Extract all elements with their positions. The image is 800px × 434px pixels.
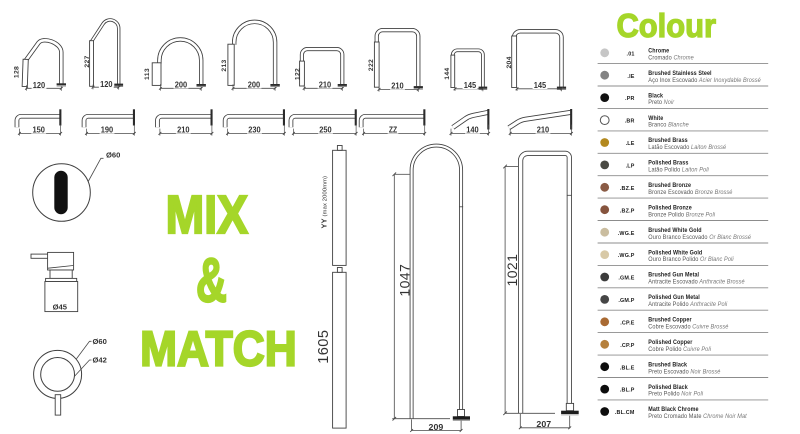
- svg-text:Matt Black Chrome: Matt Black Chrome: [648, 407, 699, 414]
- svg-text:Ø60: Ø60: [93, 337, 107, 346]
- svg-text:Cobre Escovado Cuivre Brossé: Cobre Escovado Cuivre Brossé: [648, 324, 729, 330]
- svg-text:1021: 1021: [504, 254, 520, 287]
- svg-text:MATCH: MATCH: [140, 320, 297, 376]
- svg-text:.BL.CM: .BL.CM: [615, 410, 635, 416]
- svg-text:Brushed Black: Brushed Black: [648, 362, 687, 369]
- svg-text:.GM.E: .GM.E: [618, 276, 634, 282]
- svg-text:227: 227: [84, 55, 91, 67]
- svg-text:209: 209: [429, 422, 444, 432]
- svg-text:Polished Copper: Polished Copper: [648, 340, 693, 347]
- svg-text:210: 210: [319, 80, 332, 89]
- svg-text:Polished Gun Metal: Polished Gun Metal: [648, 295, 700, 302]
- svg-text:210: 210: [537, 126, 550, 135]
- svg-text:210: 210: [391, 82, 404, 91]
- svg-text:145: 145: [464, 81, 477, 90]
- svg-text:.CP.P: .CP.P: [620, 343, 635, 349]
- svg-text:128: 128: [14, 66, 21, 78]
- svg-text:190: 190: [101, 126, 114, 135]
- svg-text:.PR: .PR: [625, 96, 635, 102]
- svg-text:1605: 1605: [316, 330, 332, 364]
- svg-text:.BL.E: .BL.E: [620, 365, 635, 371]
- svg-text:.WG.P: .WG.P: [618, 253, 635, 259]
- svg-text:.BR: .BR: [625, 119, 635, 125]
- svg-text:Preto Polido Noir Poli: Preto Polido Noir Poli: [648, 391, 703, 397]
- svg-text:Preto Escovado Noir Brossé: Preto Escovado Noir Brossé: [648, 369, 721, 375]
- svg-text:Ouro Branco Polido Or Blanc Po: Ouro Branco Polido Or Blanc Poli: [648, 257, 734, 263]
- svg-text:Antracite Escovado Anthracite: Antracite Escovado Anthracite Brossé: [648, 279, 745, 285]
- svg-text:.IE: .IE: [627, 74, 634, 80]
- svg-text:Ouro Branco Escovado Or Blanc: Ouro Branco Escovado Or Blanc Brossé: [648, 235, 751, 241]
- svg-text:Preto Cromado Mate Chrome Noir: Preto Cromado Mate Chrome Noir Mat: [648, 414, 747, 420]
- svg-text:.BL.P: .BL.P: [620, 388, 635, 394]
- svg-text:Black: Black: [648, 93, 663, 100]
- svg-text:.BZ.P: .BZ.P: [620, 208, 635, 214]
- svg-text:Cobre Polido Cuivre Poli: Cobre Polido Cuivre Poli: [648, 347, 711, 353]
- svg-text:Colour: Colour: [617, 7, 717, 44]
- svg-text:Polished Bronze: Polished Bronze: [648, 205, 692, 212]
- svg-text:210: 210: [177, 126, 190, 135]
- svg-text:.01: .01: [627, 51, 635, 57]
- svg-text:.LP: .LP: [626, 164, 635, 170]
- svg-text:Preto Noir: Preto Noir: [648, 100, 675, 106]
- svg-text:Cromado Chrome: Cromado Chrome: [648, 55, 694, 61]
- svg-text:MIX: MIX: [166, 184, 249, 245]
- svg-text:Ø45: Ø45: [53, 303, 68, 312]
- svg-text:200: 200: [248, 80, 261, 89]
- svg-text:.LE: .LE: [626, 141, 635, 147]
- svg-text:120: 120: [100, 80, 113, 89]
- svg-text:.CP.E: .CP.E: [620, 320, 635, 326]
- svg-text:150: 150: [32, 126, 45, 135]
- svg-text:Brushed Copper: Brushed Copper: [648, 317, 692, 324]
- svg-text:Chrome: Chrome: [648, 48, 669, 55]
- svg-text:Brushed Bronze: Brushed Bronze: [648, 183, 691, 190]
- svg-text:230: 230: [248, 126, 261, 135]
- svg-text:Brushed White Gold: Brushed White Gold: [648, 228, 702, 235]
- svg-text:&: &: [196, 247, 227, 316]
- svg-text:ZZ: ZZ: [389, 126, 398, 135]
- svg-text:200: 200: [175, 80, 188, 89]
- svg-text:213: 213: [221, 59, 228, 71]
- svg-text:145: 145: [534, 81, 547, 90]
- svg-text:207: 207: [536, 419, 551, 429]
- svg-text:Antracite Polido Anthracite Po: Antracite Polido Anthracite Poli: [648, 302, 728, 308]
- svg-text:.WG.E: .WG.E: [618, 231, 635, 237]
- svg-text:Polished White Gold: Polished White Gold: [648, 250, 702, 257]
- svg-text:Ø60: Ø60: [106, 151, 120, 160]
- svg-text:Aço Inox Escovado Acier Inoxyd: Aço Inox Escovado Acier Inoxydable Bross…: [648, 78, 761, 84]
- svg-text:Latão Polido Laiton Poli: Latão Polido Laiton Poli: [648, 167, 709, 173]
- svg-text:113: 113: [144, 68, 151, 80]
- svg-text:Bronze Escovado Bronze Brossé: Bronze Escovado Bronze Brossé: [648, 190, 733, 196]
- svg-text:Branco Blanche: Branco Blanche: [648, 122, 689, 128]
- svg-text:1047: 1047: [396, 264, 412, 297]
- svg-text:222: 222: [368, 59, 375, 71]
- svg-text:Polished Black: Polished Black: [648, 384, 688, 391]
- svg-text:120: 120: [33, 81, 46, 90]
- svg-text:Brushed Gun Metal: Brushed Gun Metal: [648, 272, 699, 279]
- svg-text:140: 140: [466, 126, 479, 135]
- svg-text:Brushed Stainless Steel: Brushed Stainless Steel: [648, 71, 712, 78]
- svg-text:Ø42: Ø42: [93, 356, 107, 365]
- svg-text:.BZ.E: .BZ.E: [620, 186, 635, 192]
- svg-text:250: 250: [319, 126, 332, 135]
- svg-text:White: White: [648, 115, 664, 122]
- svg-text:.GM.P: .GM.P: [618, 298, 634, 304]
- svg-text:Brushed Brass: Brushed Brass: [648, 138, 688, 145]
- svg-text:144: 144: [444, 67, 451, 79]
- svg-text:122: 122: [294, 68, 301, 80]
- svg-text:Latão Escovado Laiton Brossé: Latão Escovado Laiton Brossé: [648, 145, 727, 151]
- svg-text:Polished Brass: Polished Brass: [648, 160, 689, 167]
- svg-text:Bronze Polido Bronze Poli: Bronze Polido Bronze Poli: [648, 212, 715, 218]
- svg-text:204: 204: [506, 56, 513, 68]
